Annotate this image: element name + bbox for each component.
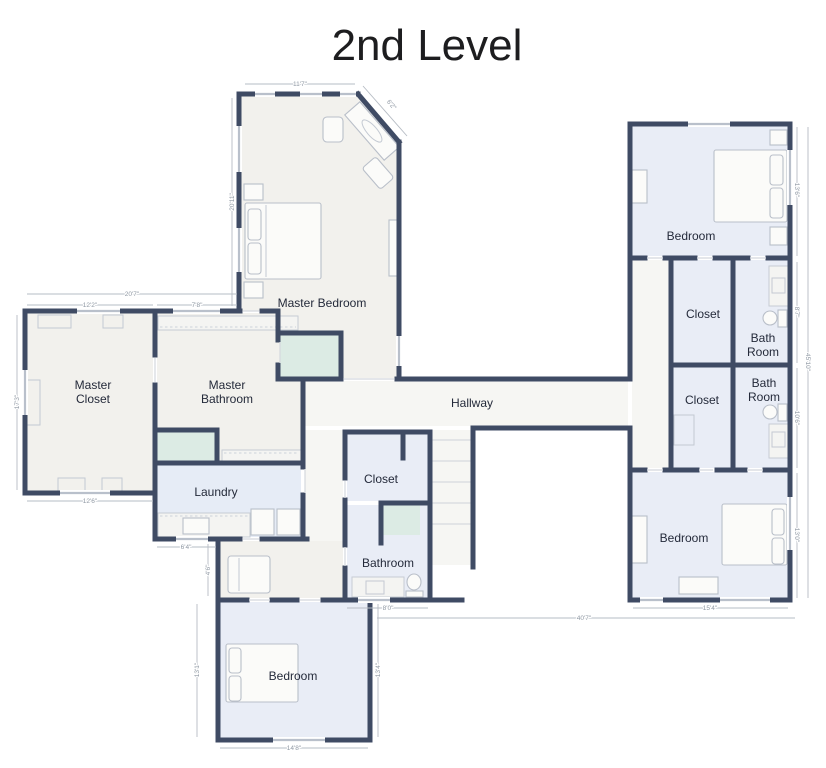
label-laundry: Laundry (194, 485, 237, 499)
label-master-closet-1: Master (75, 378, 112, 392)
dimension-label: 6'2" (385, 99, 398, 112)
washer-icon (251, 509, 274, 535)
label-bath-right-lower-2: Room (748, 390, 780, 404)
dimension-label: 13'0" (793, 528, 800, 543)
label-master-closet-2: Closet (76, 392, 111, 406)
label-hallway: Hallway (451, 396, 493, 410)
dimension-label: 45'10" (804, 353, 811, 372)
dimension-label: 4'6" (205, 564, 212, 575)
vanity-icon-bath-upper (769, 266, 788, 306)
page-title: 2nd Level (332, 21, 523, 70)
dresser-icon (632, 516, 647, 563)
label-master-bathroom-1: Master (209, 378, 246, 392)
label-closet-right-lower: Closet (685, 393, 720, 407)
dimension-label: 20'11" (229, 193, 236, 211)
bed-icon-master (245, 203, 321, 279)
dimension-label: 13'6" (793, 183, 800, 198)
dimension-label: 40'7" (577, 615, 592, 622)
nightstand-icon (244, 184, 263, 200)
room-closet-center (347, 434, 428, 501)
dimension-label: 8'0" (383, 605, 394, 612)
label-closet-right-upper: Closet (686, 307, 721, 321)
label-closet-center: Closet (364, 472, 399, 486)
shower-center (383, 505, 420, 535)
label-bedroom-bottom-right: Bedroom (660, 531, 709, 545)
dresser-icon (632, 170, 647, 203)
nightstand-icon (770, 227, 787, 245)
closet-green-bathroom (157, 432, 215, 461)
dimension-label: 11'7" (293, 81, 308, 88)
nightstand-icon (770, 130, 787, 145)
label-bath-right-lower-1: Bath (752, 376, 777, 390)
dryer-icon (277, 509, 300, 535)
room-closet-right-lower (673, 367, 731, 468)
floor-plan-page: Master Bedroom Master Closet Master Bath… (0, 0, 826, 768)
label-master-bedroom: Master Bedroom (278, 296, 367, 310)
bed-icon-top-right (714, 150, 787, 222)
label-bedroom-top-right: Bedroom (667, 229, 716, 243)
dimension-label: 20'7" (125, 291, 140, 298)
dimension-label: 12'2" (83, 302, 98, 309)
dimension-label: 6'4" (181, 544, 192, 551)
dimension-label: 12'6" (83, 498, 98, 505)
dimension-label: 14'8" (287, 745, 302, 752)
sofa-icon (228, 556, 270, 593)
dimension-label: 17'3" (14, 394, 21, 409)
floor-plan-canvas: Master Bedroom Master Closet Master Bath… (0, 0, 826, 768)
dimension-label: 13'4" (375, 662, 382, 677)
bed-icon-bottom-right (722, 504, 787, 565)
corridor-center (305, 430, 343, 541)
dimension-label: 8'7" (793, 307, 800, 318)
closet-green-master (280, 335, 339, 378)
label-bath-right-upper-1: Bath (751, 331, 776, 345)
label-bath-right-upper-2: Room (747, 345, 779, 359)
vanity-icon-center-bath (352, 577, 404, 597)
laundry-counter-icon (158, 513, 250, 537)
dimension-label: 7'8" (192, 302, 203, 309)
vanity-icon-bath-lower (769, 424, 788, 458)
corridor-right-wing (632, 260, 669, 468)
label-bathroom-center: Bathroom (362, 556, 414, 570)
dimension-label: 10'6" (793, 411, 800, 426)
label-bedroom-bottom-left: Bedroom (269, 669, 318, 683)
dimension-label: 13'1" (194, 662, 201, 677)
label-master-bathroom-2: Bathroom (201, 392, 253, 406)
armchair-icon (323, 117, 343, 142)
stairwell-floor (432, 430, 471, 565)
nightstand-icon (244, 282, 263, 298)
bench-icon (679, 577, 718, 594)
dimension-label: 15'4" (703, 605, 718, 612)
